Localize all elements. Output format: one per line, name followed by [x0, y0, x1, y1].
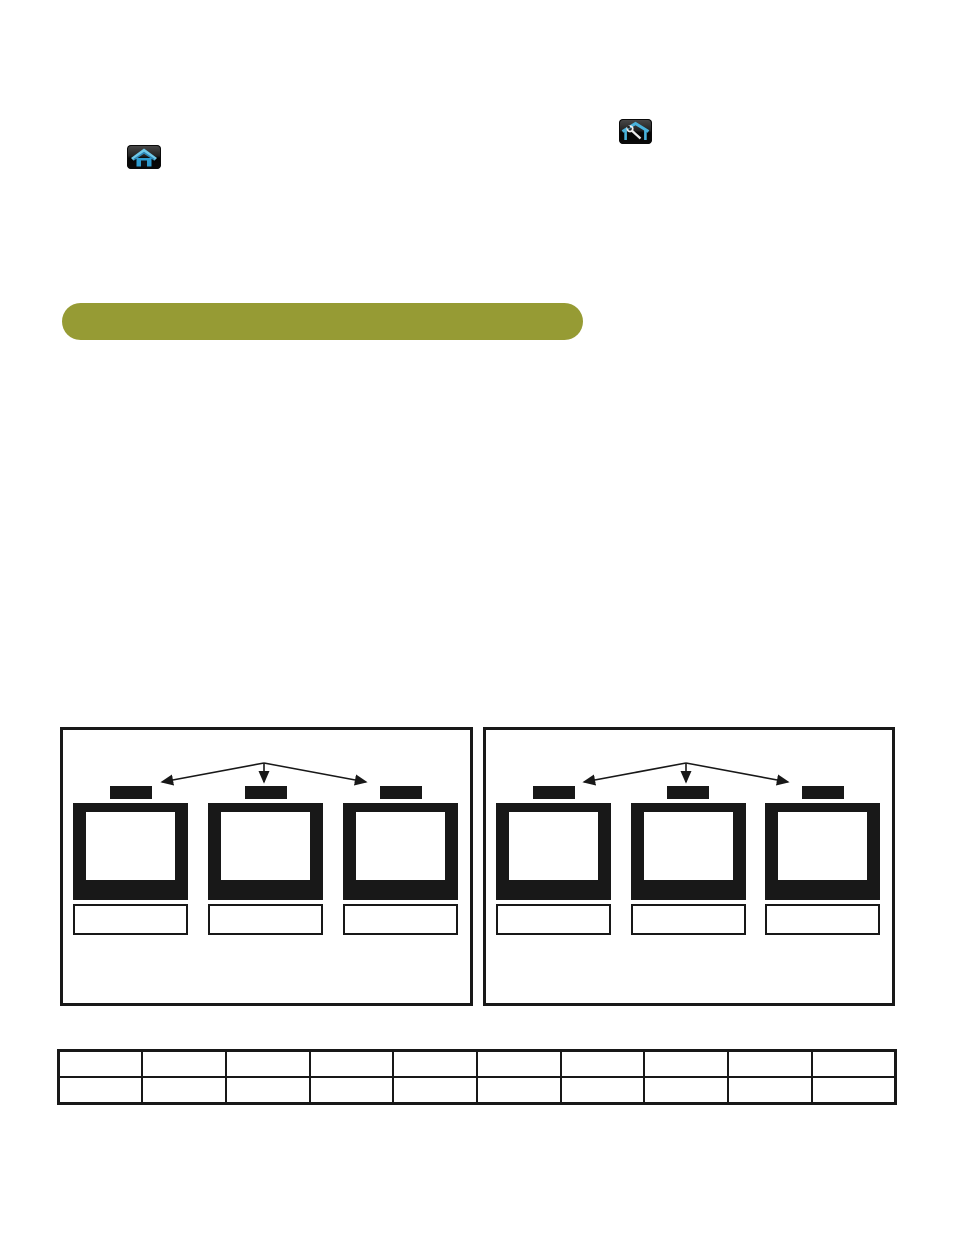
table-cell [59, 1077, 143, 1104]
table-cell [142, 1077, 226, 1104]
table-cell [561, 1077, 645, 1104]
bottom-table [57, 1049, 897, 1105]
tv-monitor [343, 803, 458, 900]
tv-row [486, 786, 892, 935]
source-device-box [802, 786, 844, 799]
table-cell [226, 1077, 310, 1104]
tv-unit [631, 786, 746, 935]
table-cell [393, 1077, 477, 1104]
diagram-panel-left-inner [63, 730, 470, 1003]
table-cell [812, 1051, 896, 1078]
tv-monitor [496, 803, 611, 900]
table-cell [310, 1051, 394, 1078]
home-icon [127, 145, 161, 169]
table-cell [142, 1051, 226, 1078]
tv-unit [73, 786, 188, 935]
tv-monitor [73, 803, 188, 900]
diagram-panel-right [483, 727, 895, 1006]
tv-unit [343, 786, 458, 935]
table-row [59, 1077, 896, 1104]
tv-row [63, 786, 470, 935]
tv-unit [208, 786, 323, 935]
home-wrench-icon [619, 119, 652, 144]
source-device-box [667, 786, 709, 799]
tv-unit [496, 786, 611, 935]
tv-label-box [343, 904, 458, 935]
tv-label-box [208, 904, 323, 935]
tv-label-box [496, 904, 611, 935]
tv-monitor [631, 803, 746, 900]
home-icon-glyph [127, 145, 161, 169]
table-cell [477, 1077, 561, 1104]
diagram-panel-right-inner [486, 730, 892, 1003]
source-device-box [533, 786, 575, 799]
tv-label-box [765, 904, 880, 935]
section-banner [62, 303, 583, 340]
table-cell [226, 1051, 310, 1078]
table-row [59, 1051, 896, 1078]
tv-unit [765, 786, 880, 935]
diagram-panel-left [60, 727, 473, 1006]
table-cell [644, 1051, 728, 1078]
table-cell [393, 1051, 477, 1078]
manual-page [0, 0, 954, 1235]
tv-monitor [208, 803, 323, 900]
table-cell [561, 1051, 645, 1078]
table-cell [644, 1077, 728, 1104]
table-cell [812, 1077, 896, 1104]
tv-label-box [631, 904, 746, 935]
source-device-box [245, 786, 287, 799]
table-cell [728, 1051, 812, 1078]
table-cell [310, 1077, 394, 1104]
home-wrench-icon-glyph [619, 119, 652, 144]
tv-label-box [73, 904, 188, 935]
table-cell [477, 1051, 561, 1078]
table-cell [59, 1051, 143, 1078]
source-device-box [110, 786, 152, 799]
source-device-box [380, 786, 422, 799]
table-cell [728, 1077, 812, 1104]
tv-monitor [765, 803, 880, 900]
